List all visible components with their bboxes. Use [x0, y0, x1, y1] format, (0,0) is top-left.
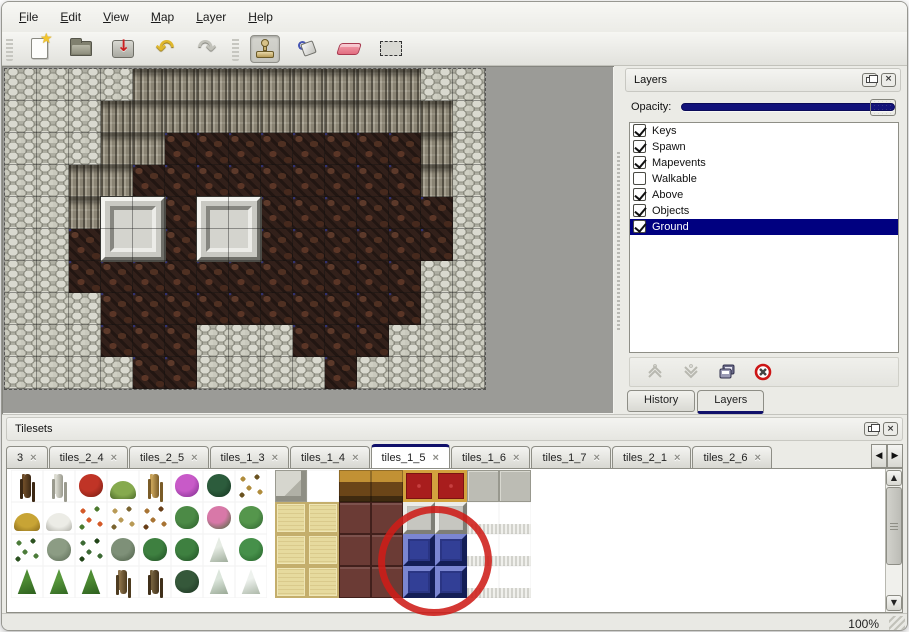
- map-tile-stone-scale: [37, 325, 69, 357]
- menu-map[interactable]: Map: [140, 6, 185, 28]
- mound-sprite: [46, 513, 72, 531]
- menu-edit[interactable]: Edit: [49, 6, 92, 28]
- blob-sprite: [207, 506, 231, 529]
- tab-label: tiles_2_1: [623, 452, 667, 464]
- stalk-sprite: [152, 570, 159, 594]
- palette-tile-stalk[interactable]: [11, 470, 43, 502]
- palette-tile-blue[interactable]: [435, 534, 467, 566]
- palette-tile-maroon[interactable]: [339, 566, 371, 598]
- map-tile-stone-scale: [5, 197, 37, 229]
- save-disk-icon: ↓: [112, 40, 134, 58]
- layer-name: Mapevents: [652, 157, 706, 169]
- tab-close-icon[interactable]: ×: [111, 452, 117, 464]
- palette-tile-blob[interactable]: [43, 534, 75, 566]
- tileset-tab-tiles_2_4[interactable]: tiles_2_4×: [49, 446, 128, 468]
- map-tile-brown-floor: [133, 165, 165, 197]
- palette-tile-blob[interactable]: [171, 502, 203, 534]
- palette-tile-carpet[interactable]: [403, 470, 435, 502]
- layer-move-down-button[interactable]: [680, 361, 702, 383]
- palette-tile-maroon[interactable]: [339, 502, 371, 534]
- tilesets-title: Tilesets: [15, 423, 53, 435]
- map-tile-brown-floor: [69, 229, 101, 261]
- layer-delete-button[interactable]: [752, 361, 774, 383]
- map-tile-stone-scale: [453, 197, 485, 229]
- tab-close-icon[interactable]: ×: [352, 452, 358, 464]
- redo-button[interactable]: ↷: [192, 35, 222, 63]
- map-tile-brown-floor: [133, 261, 165, 293]
- map-tile-brown-floor: [325, 357, 357, 389]
- menu-help[interactable]: Help: [237, 6, 284, 28]
- palette-tile-cream[interactable]: [275, 534, 307, 566]
- palette-tile-blue[interactable]: [435, 566, 467, 598]
- palette-tile-maroon[interactable]: [371, 534, 403, 566]
- float-tilesets-button[interactable]: [864, 422, 879, 436]
- map-tile-stone-scale: [197, 325, 229, 357]
- map-tile-brown-floor: [357, 325, 389, 357]
- tab-close-icon[interactable]: ×: [433, 452, 439, 464]
- map-tile-brown-floor: [357, 133, 389, 165]
- map-tile-brown-floor: [389, 165, 421, 197]
- tab-close-icon[interactable]: ×: [754, 452, 760, 464]
- save-button[interactable]: ↓: [108, 35, 138, 63]
- palette-tile-wood[interactable]: [339, 470, 371, 502]
- map-tile-stone-scale: [69, 133, 101, 165]
- tab-label: tiles_1_4: [301, 452, 345, 464]
- palette-tile-stalk[interactable]: [107, 566, 139, 598]
- map-tile-brown-floor: [293, 261, 325, 293]
- scroll-down-button[interactable]: ▼: [886, 595, 902, 611]
- blob-sprite: [143, 538, 167, 561]
- map-tile-brown-floor: [133, 325, 165, 357]
- scatter-sprite: [107, 502, 139, 534]
- layers-panel: Layers × Opacity: KeysSpawnMapeventsWalk…: [623, 66, 907, 414]
- toolbar: ★↓↶↷: [2, 32, 907, 66]
- map-tile-stone-scale: [69, 293, 101, 325]
- palette-tile-cream[interactable]: [275, 566, 307, 598]
- tab-label: tiles_1_3: [221, 452, 265, 464]
- layer-row-walkable[interactable]: Walkable: [630, 171, 898, 187]
- map-tile-stone-scale: [5, 69, 37, 101]
- map-tile-stone-scale: [453, 261, 485, 293]
- palette-tile-blob[interactable]: [107, 534, 139, 566]
- scatter-sprite: [139, 502, 171, 534]
- map-tile-cliff-face: [69, 197, 101, 229]
- palette-tile-maroon[interactable]: [371, 566, 403, 598]
- undo-button[interactable]: ↶: [150, 35, 180, 63]
- palette-tile-stalk[interactable]: [43, 470, 75, 502]
- stalk-sprite: [56, 474, 63, 498]
- palette-tile-tri[interactable]: [43, 566, 75, 598]
- map-tile-cliff-face: [197, 101, 229, 133]
- map-tile-cliff-face: [389, 101, 421, 133]
- map-tile-brown-floor: [101, 261, 133, 293]
- map-tile-brown-floor: [421, 229, 453, 261]
- tab-close-icon[interactable]: ×: [674, 452, 680, 464]
- palette-tile-scatter[interactable]: [107, 502, 139, 534]
- close-icon: ×: [887, 425, 895, 434]
- map-tile-brown-floor: [261, 165, 293, 197]
- layer-visibility-checkbox[interactable]: [633, 204, 646, 217]
- map-tile-brown-floor: [165, 261, 197, 293]
- float-panel-button[interactable]: [862, 73, 877, 87]
- map-tile-brown-floor: [357, 197, 389, 229]
- map-tile-stone-scale: [453, 69, 485, 101]
- map-tile-brown-floor: [293, 197, 325, 229]
- map-tile-stone-scale: [5, 261, 37, 293]
- map-tile-stone-scale: [5, 165, 37, 197]
- map-tile-cliff-face: [101, 101, 133, 133]
- vertical-splitter[interactable]: [614, 66, 623, 414]
- map-tile-stone-scale: [101, 69, 133, 101]
- opacity-slider[interactable]: [681, 103, 895, 111]
- map-tile-stone-scale: [37, 101, 69, 133]
- map-tile-brown-floor: [165, 229, 197, 261]
- palette-tile-curtain[interactable]: [499, 534, 531, 566]
- palette-tile-curtain[interactable]: [467, 566, 499, 598]
- map-tile-cliff-face: [421, 165, 453, 197]
- blob-sprite: [175, 506, 199, 529]
- palette-tile-cream[interactable]: [307, 502, 339, 534]
- layer-visibility-checkbox[interactable]: [633, 140, 646, 153]
- tab-close-icon[interactable]: ×: [272, 452, 278, 464]
- palette-tile-mound[interactable]: [107, 470, 139, 502]
- tileset-tab-tiles_1_3[interactable]: tiles_1_3×: [210, 446, 289, 468]
- palette-tile-blob[interactable]: [171, 534, 203, 566]
- layer-visibility-checkbox[interactable]: [633, 156, 646, 169]
- map-tile-stone-scale: [453, 325, 485, 357]
- map-tile-brown-floor: [229, 133, 261, 165]
- palette-tile-cream[interactable]: [307, 566, 339, 598]
- map-tile-cliff-face: [133, 101, 165, 133]
- map-tile-stone-scale: [37, 133, 69, 165]
- map-tile-stone-scale: [5, 133, 37, 165]
- tab-label: tiles_1_7: [542, 452, 586, 464]
- map-tile-stone-scale: [5, 229, 37, 261]
- map-tile-brown-floor: [357, 165, 389, 197]
- blob-sprite: [175, 570, 199, 593]
- map-tile-stone-scale: [5, 293, 37, 325]
- layer-name: Above: [652, 189, 683, 201]
- palette-tile-curtain[interactable]: [499, 502, 531, 534]
- close-icon: ×: [885, 75, 893, 84]
- map-tile-brown-floor: [293, 293, 325, 325]
- map-tile-brown-floor: [133, 357, 165, 389]
- map-tile-cliff-face: [357, 69, 389, 101]
- palette-tile-cream[interactable]: [307, 534, 339, 566]
- map-tile-stone-scale: [37, 165, 69, 197]
- palette-tile-blob[interactable]: [171, 470, 203, 502]
- blob-sprite: [175, 474, 199, 497]
- map-tile-cliff-face: [357, 101, 389, 133]
- map-tile-brown-floor: [325, 325, 357, 357]
- blob-sprite: [79, 474, 103, 497]
- map-tile-stone-scale: [453, 229, 485, 261]
- blob-sprite: [47, 538, 71, 561]
- map-tile-cliff-face: [421, 101, 453, 133]
- map-tile-stone-scale: [37, 357, 69, 389]
- stamp-tool-icon: [255, 39, 275, 59]
- scatter-sprite: [75, 502, 107, 534]
- tab-scroll-right-button[interactable]: ▶: [887, 444, 903, 468]
- close-tilesets-button[interactable]: ×: [883, 422, 898, 436]
- eraser-button[interactable]: [334, 35, 364, 63]
- menu-view[interactable]: View: [92, 6, 140, 28]
- palette-tile-blob[interactable]: [171, 566, 203, 598]
- palette-tile-maroon[interactable]: [371, 502, 403, 534]
- tab-label: tiles_2_6: [703, 452, 747, 464]
- new-button[interactable]: ★: [24, 35, 54, 63]
- toolbar-handle[interactable]: [6, 37, 13, 61]
- tileset-tab-tiles_2_6[interactable]: tiles_2_6×: [692, 446, 771, 468]
- map-tile-brown-floor: [101, 293, 133, 325]
- map-tile-stone-scale: [5, 357, 37, 389]
- tab-scroll-left-button[interactable]: ◀: [871, 444, 887, 468]
- layers-titlebar: Layers ×: [625, 68, 901, 92]
- select-tool-icon: [380, 41, 402, 56]
- blob-sprite: [239, 506, 263, 529]
- map-tile-brown-floor: [69, 261, 101, 293]
- tab-close-icon[interactable]: ×: [594, 452, 600, 464]
- dock-tabs: HistoryLayers: [625, 387, 901, 414]
- map-tile-brown-floor: [101, 325, 133, 357]
- map-tile-stone-scale: [421, 325, 453, 357]
- palette-tile-blob[interactable]: [235, 534, 267, 566]
- float-icon: [868, 426, 875, 432]
- palette-tile-metal[interactable]: [403, 502, 435, 534]
- map-tile-brown-floor: [357, 293, 389, 325]
- palette-tile-gray[interactable]: [499, 470, 531, 502]
- tileset-tab-tiles_2_5[interactable]: tiles_2_5×: [129, 446, 208, 468]
- toolbar-handle[interactable]: [232, 37, 239, 61]
- palette-tile-metal[interactable]: [435, 502, 467, 534]
- opacity-label: Opacity:: [631, 101, 671, 113]
- dock-tab-history[interactable]: History: [627, 390, 695, 412]
- palette-tile-scatter[interactable]: [235, 470, 267, 502]
- layer-name: Ground: [652, 221, 689, 233]
- map-tile-cliff-face: [229, 101, 261, 133]
- opacity-slider-handle[interactable]: [870, 99, 896, 116]
- map-tile-brown-floor: [165, 325, 197, 357]
- palette-tile-empty[interactable]: [307, 470, 339, 502]
- map-tile-stone-scale: [37, 69, 69, 101]
- map-tile-stone-scale: [261, 325, 293, 357]
- palette-scrollbar: ▲ ▼: [885, 469, 902, 612]
- app-window: FileEditViewMapLayerHelp ★↓↶↷ Layers × O…: [1, 1, 908, 631]
- palette-tile-blob[interactable]: [139, 534, 171, 566]
- tileset-tab-3[interactable]: 3×: [6, 446, 48, 468]
- map-tile-stone-scale: [37, 261, 69, 293]
- blob-sprite: [239, 538, 263, 561]
- scroll-up-button[interactable]: ▲: [886, 470, 902, 486]
- menubar: FileEditViewMapLayerHelp: [2, 2, 907, 32]
- map-tile-brown-floor: [261, 229, 293, 261]
- map-tile-stone-scale: [37, 229, 69, 261]
- palette-tile-scatter[interactable]: [139, 502, 171, 534]
- float-icon: [866, 77, 873, 83]
- map-tile-cliff-face: [293, 101, 325, 133]
- stalk-sprite: [120, 570, 127, 594]
- palette-tile-tri[interactable]: [203, 534, 235, 566]
- map-tile-cliff-face: [229, 69, 261, 101]
- palette-tile-maroon[interactable]: [339, 534, 371, 566]
- tileset-tab-tiles_1_7[interactable]: tiles_1_7×: [531, 446, 610, 468]
- map-tile-cliff-face: [133, 133, 165, 165]
- map-tile-brown-floor: [325, 229, 357, 261]
- map-tile-stone-scale: [101, 357, 133, 389]
- tri-sprite: [16, 569, 38, 595]
- palette-tile-blob[interactable]: [75, 470, 107, 502]
- tileset-tab-tiles_1_4[interactable]: tiles_1_4×: [290, 446, 369, 468]
- palette-tile-blue[interactable]: [403, 534, 435, 566]
- map-tile-stone-scale: [453, 133, 485, 165]
- layer-row-objects[interactable]: Objects: [630, 203, 898, 219]
- map-tile-brown-floor: [197, 133, 229, 165]
- map-tile-brown-floor: [229, 165, 261, 197]
- scroll-thumb[interactable]: [886, 487, 902, 565]
- tilesets-panel: Tilesets × 3×tiles_2_4×tiles_2_5×tiles_1…: [2, 414, 907, 613]
- map-tile-brown-floor: [165, 197, 197, 229]
- map-tile-cliff-face: [389, 69, 421, 101]
- bucket-button[interactable]: [292, 35, 322, 63]
- dock-tab-layers[interactable]: Layers: [697, 390, 764, 414]
- palette-tile-scatter[interactable]: [75, 502, 107, 534]
- layer-name: Keys: [652, 125, 676, 137]
- map-tile-cliff-face: [133, 69, 165, 101]
- map-tile-stone-scale: [453, 165, 485, 197]
- palette-tile-mound[interactable]: [43, 502, 75, 534]
- map-tile-brown-floor: [293, 325, 325, 357]
- map-tile-cliff-face: [261, 101, 293, 133]
- layer-visibility-checkbox[interactable]: [633, 188, 646, 201]
- map-tile-brown-floor: [389, 197, 421, 229]
- map-tile-stone-scale: [69, 357, 101, 389]
- map-tile-brown-floor: [357, 229, 389, 261]
- map-tile-brown-floor: [197, 165, 229, 197]
- tileset-tab-tiles_1_6[interactable]: tiles_1_6×: [451, 446, 530, 468]
- palette-tile-tri[interactable]: [11, 566, 43, 598]
- palette-tile-wood[interactable]: [371, 470, 403, 502]
- tri-sprite: [208, 569, 230, 595]
- close-panel-button[interactable]: ×: [881, 73, 896, 87]
- map-tile-brown-floor: [389, 133, 421, 165]
- map-tile-brown-floor: [261, 133, 293, 165]
- map-tile-stone-scale: [453, 357, 485, 389]
- map-tile-stone-scale: [293, 357, 325, 389]
- map-tile-brown-floor: [165, 293, 197, 325]
- map-tile-stone-scale: [37, 197, 69, 229]
- tab-close-icon[interactable]: ×: [30, 452, 36, 464]
- map-tile-stone-scale: [69, 69, 101, 101]
- map-tile-brown-floor: [421, 197, 453, 229]
- layer-name: Spawn: [652, 141, 686, 153]
- palette-tile-curtain[interactable]: [467, 534, 499, 566]
- blob-sprite: [207, 474, 231, 497]
- palette-tile-tri[interactable]: [75, 566, 107, 598]
- palette-tile-blue[interactable]: [403, 566, 435, 598]
- mound-sprite: [110, 481, 136, 499]
- map-tile-brown-floor: [165, 165, 197, 197]
- scatter-sprite: [75, 534, 107, 566]
- map-tile-cliff-face: [101, 133, 133, 165]
- tileset-tab-tiles_1_5[interactable]: tiles_1_5×: [371, 444, 450, 469]
- map-tile-stone-scale: [421, 261, 453, 293]
- layer-visibility-checkbox[interactable]: [633, 124, 646, 137]
- map-tile-cliff-face: [325, 69, 357, 101]
- open-folder-icon: [70, 41, 92, 56]
- main-row: Layers × Opacity: KeysSpawnMapeventsWalk…: [2, 66, 907, 414]
- map-tile-stone-scale: [421, 357, 453, 389]
- layer-visibility-checkbox[interactable]: [633, 172, 646, 185]
- map-tile-cliff-face: [293, 69, 325, 101]
- palette-tile-stone[interactable]: [275, 470, 307, 502]
- palette-tile-carpet[interactable]: [435, 470, 467, 502]
- resize-grip[interactable]: [889, 616, 905, 631]
- tileset-palette: ▲ ▼: [6, 469, 903, 613]
- palette-tile-blob[interactable]: [203, 470, 235, 502]
- palette-tile-blob[interactable]: [203, 502, 235, 534]
- tri-sprite: [208, 537, 230, 563]
- map-tile-brown-floor: [293, 229, 325, 261]
- layer-row-ground[interactable]: Ground: [630, 219, 898, 235]
- menu-file[interactable]: File: [8, 6, 49, 28]
- palette-tile-curtain[interactable]: [499, 566, 531, 598]
- map-canvas[interactable]: [5, 69, 485, 389]
- map-tile-brown-floor: [165, 357, 197, 389]
- layer-visibility-checkbox[interactable]: [633, 220, 646, 233]
- tileset-tab-tiles_2_1[interactable]: tiles_2_1×: [612, 446, 691, 468]
- menu-layer[interactable]: Layer: [185, 6, 237, 28]
- layer-row-keys[interactable]: Keys: [630, 123, 898, 139]
- palette-tile-scatter[interactable]: [75, 534, 107, 566]
- palette-tile-scatter[interactable]: [11, 534, 43, 566]
- redo-icon: ↷: [198, 38, 216, 60]
- layer-row-above[interactable]: Above: [630, 187, 898, 203]
- palette-tile-blob[interactable]: [235, 502, 267, 534]
- stalk-sprite: [24, 474, 31, 498]
- palette-tile-stalk[interactable]: [139, 566, 171, 598]
- tab-close-icon[interactable]: ×: [191, 452, 197, 464]
- layer-row-spawn[interactable]: Spawn: [630, 139, 898, 155]
- palette-tile-tri[interactable]: [235, 566, 267, 598]
- select-button[interactable]: [376, 35, 406, 63]
- fill-tool-icon: [297, 39, 317, 59]
- open-button[interactable]: [66, 35, 96, 63]
- map-tile-brown-floor: [261, 261, 293, 293]
- layers-title: Layers: [634, 74, 667, 86]
- palette-tile-mound[interactable]: [11, 502, 43, 534]
- map-tile-cliff-face: [325, 101, 357, 133]
- map-tile-brown-floor: [165, 133, 197, 165]
- stamp-button[interactable]: [250, 35, 280, 63]
- layer-row-mapevents[interactable]: Mapevents: [630, 155, 898, 171]
- map-tile-brown-floor: [389, 293, 421, 325]
- tri-sprite: [80, 569, 102, 595]
- eraser-tool-icon: [336, 43, 362, 55]
- palette-tile-cream[interactable]: [275, 502, 307, 534]
- palette-tile-tri[interactable]: [203, 566, 235, 598]
- layer-duplicate-button[interactable]: [716, 361, 738, 383]
- tab-close-icon[interactable]: ×: [513, 452, 519, 464]
- palette-tile-stalk[interactable]: [139, 470, 171, 502]
- stalk-sprite: [152, 474, 159, 498]
- map-tile-stone-scale: [421, 293, 453, 325]
- palette-tile-curtain[interactable]: [467, 502, 499, 534]
- palette-tile-gray[interactable]: [467, 470, 499, 502]
- mound-sprite: [14, 513, 40, 531]
- new-file-icon: ★: [31, 38, 48, 59]
- map-tile-brown-floor: [293, 133, 325, 165]
- layer-move-up-button[interactable]: [644, 361, 666, 383]
